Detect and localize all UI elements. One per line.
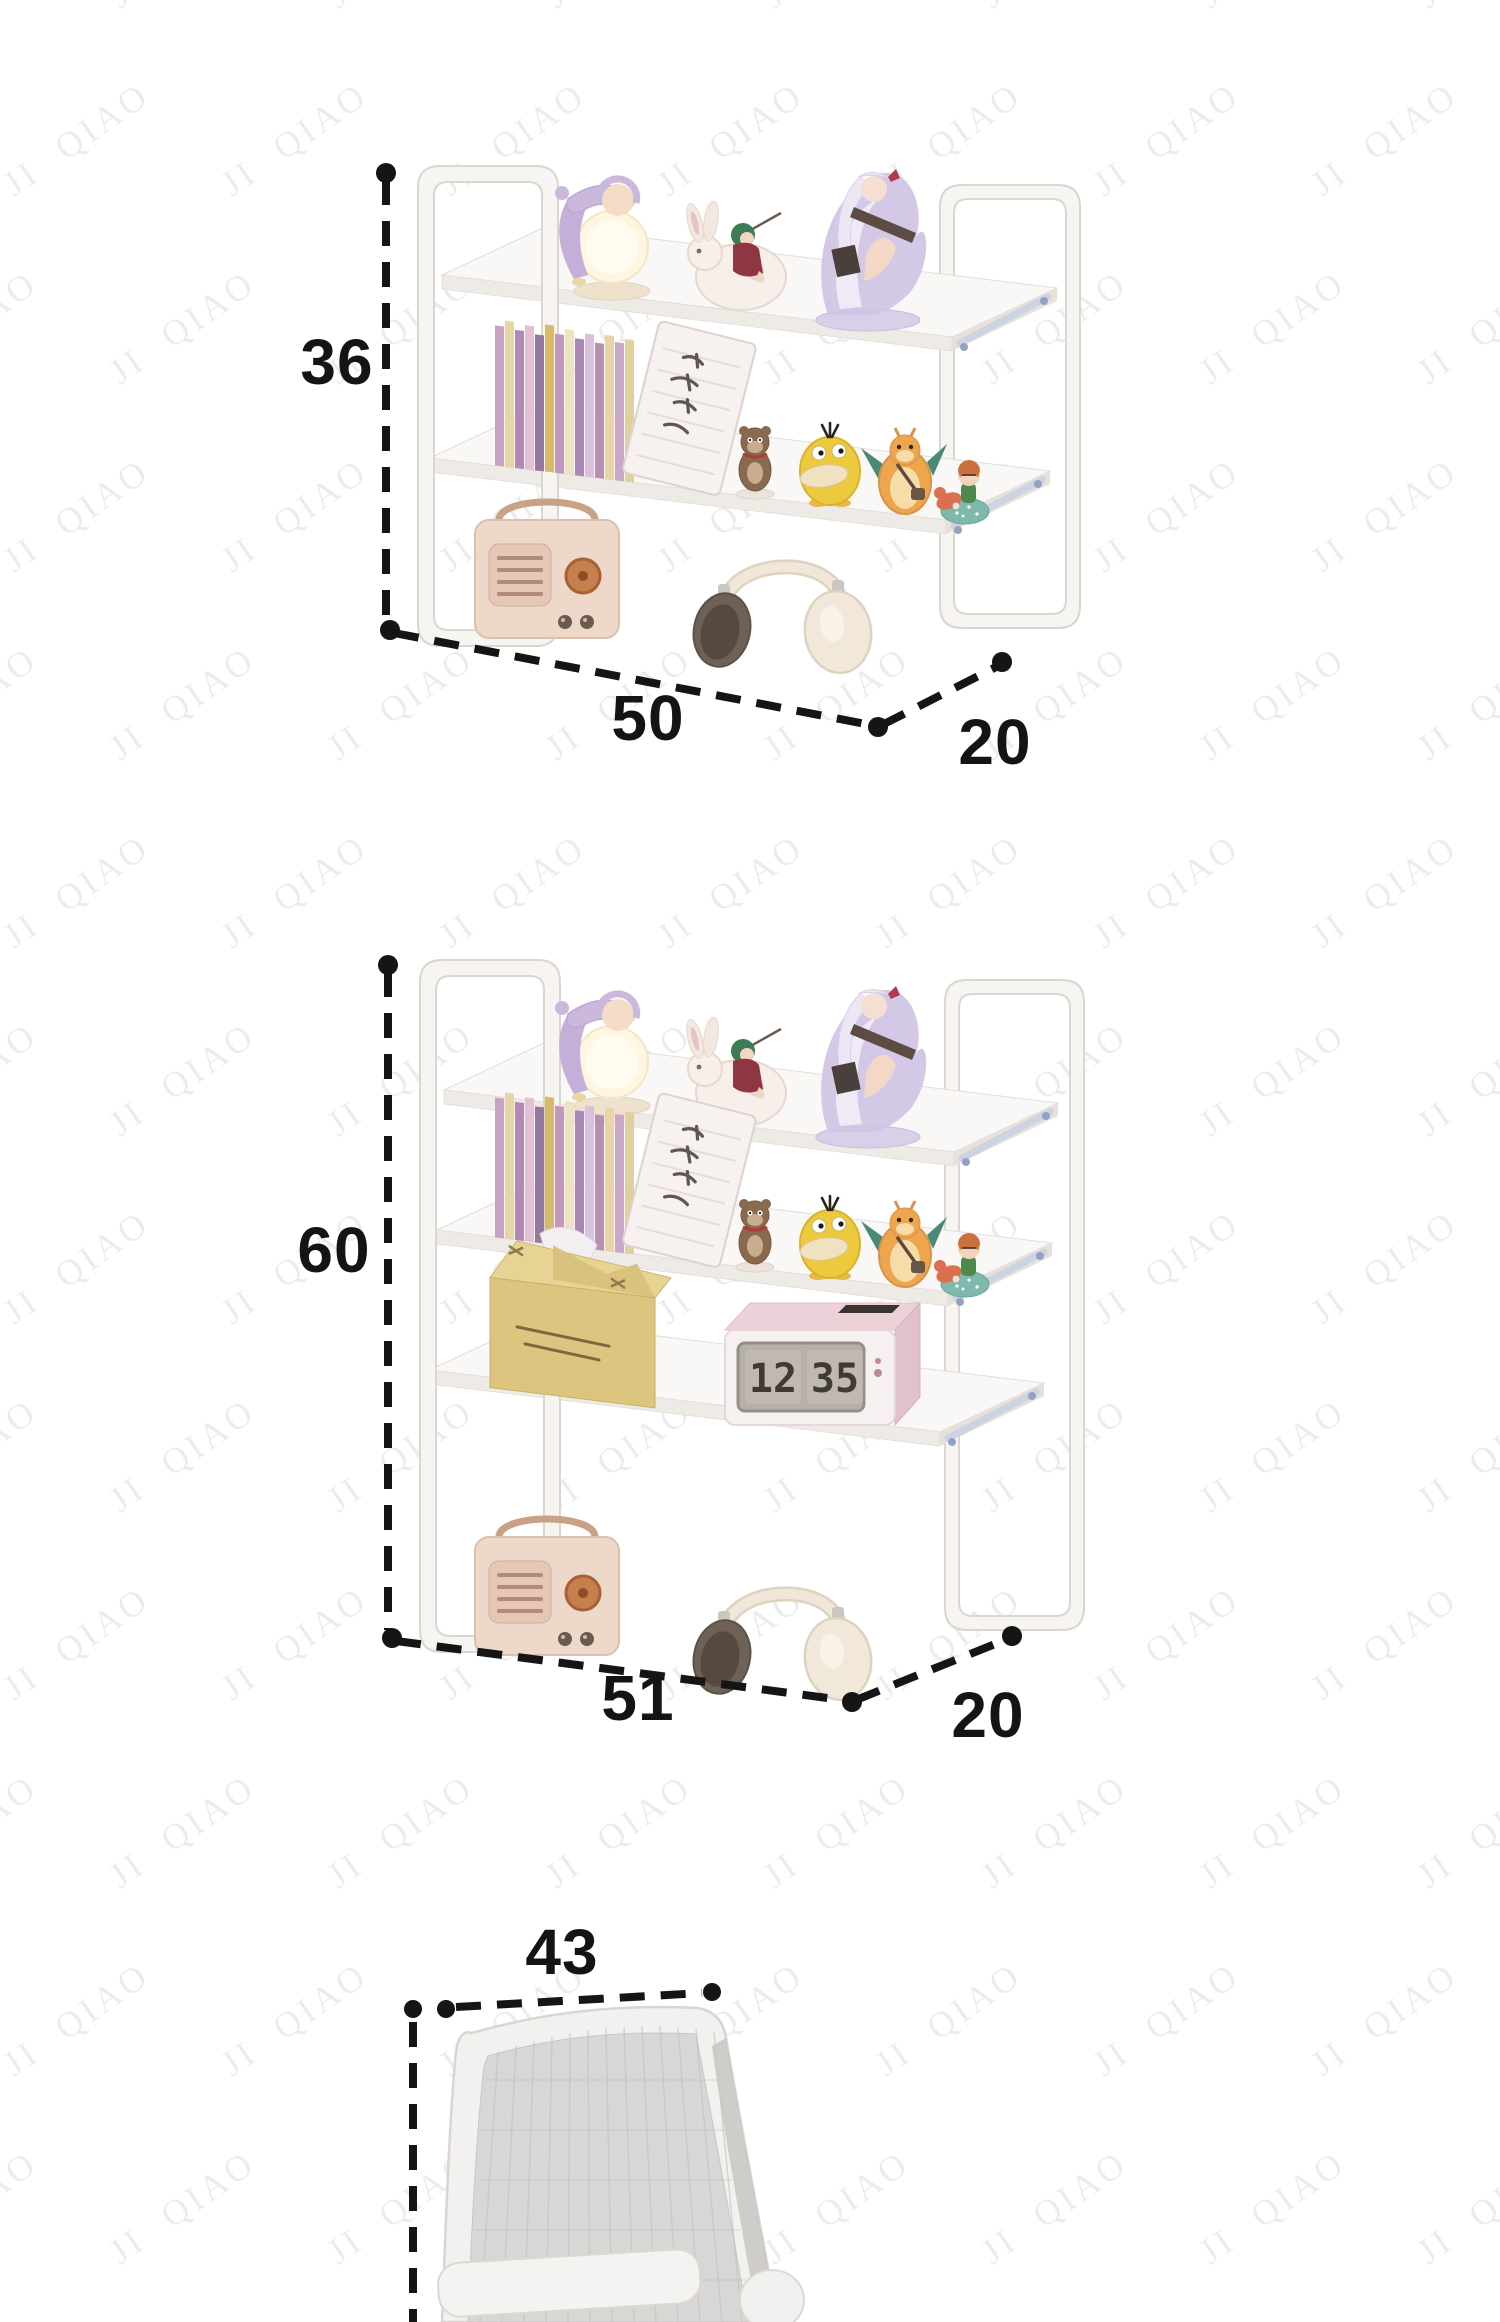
dim-label-shelf1-height: 36 — [300, 325, 373, 399]
chair-backrest — [437, 2007, 804, 2322]
clock-minutes: 35 — [811, 1356, 859, 1402]
shelf-2tier-right-frame — [940, 185, 1080, 628]
shelf-3tier-right-frame — [945, 980, 1084, 1630]
dim-label-shelf1-depth: 20 — [958, 705, 1031, 779]
product-image-canvas: JI QIAOJI QIAOJI QIAOJI QIAOJI QIAOJI QI… — [0, 0, 1500, 2322]
dim-label-shelf2-depth: 20 — [951, 1678, 1024, 1752]
dim-label-chair-width: 43 — [525, 1915, 598, 1989]
dim-label-shelf2-width: 51 — [601, 1661, 674, 1735]
shelf-3tier-illustration: 12 35 — [360, 930, 1140, 1760]
armrest-piece — [740, 2270, 804, 2322]
dim-label-shelf1-width: 50 — [611, 681, 684, 755]
clock-hours: 12 — [749, 1356, 797, 1402]
shelf-2tier-illustration — [360, 100, 1120, 780]
digital-clock: 12 35 — [725, 1303, 920, 1425]
dim-label-shelf2-height: 60 — [297, 1213, 370, 1287]
chair-backrest-illustration — [380, 1880, 840, 2322]
